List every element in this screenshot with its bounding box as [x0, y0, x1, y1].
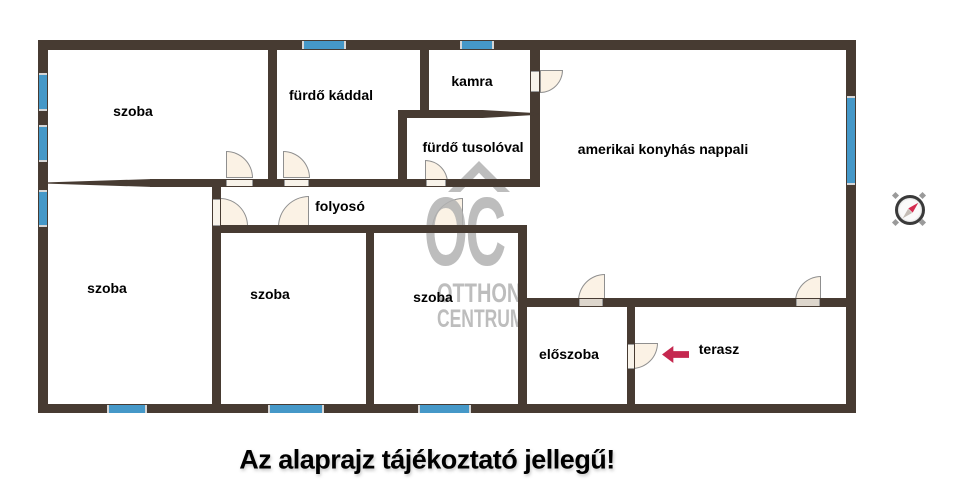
window [107, 405, 147, 413]
door-threshold [796, 299, 820, 306]
door-arc [578, 274, 605, 301]
watermark-centrum: CENTRUM [437, 308, 525, 330]
door-arc [283, 151, 310, 178]
floor-plan: OC OTTHON CENTRUM Az alaprajz tájékoztat… [0, 0, 963, 500]
wall [398, 114, 407, 187]
window [39, 73, 47, 111]
room-label-előszoba: előszoba [539, 346, 599, 362]
entrance-arrow-icon [662, 346, 689, 363]
door-threshold [213, 199, 220, 226]
door-threshold [426, 180, 446, 186]
compass-tick-nw [892, 192, 899, 199]
window [847, 96, 855, 185]
wall [47, 179, 153, 187]
room-label-szoba: szoba [87, 280, 127, 296]
window [39, 190, 47, 227]
room-label-szoba: szoba [413, 289, 453, 305]
door-arc [278, 196, 309, 227]
wall [366, 225, 374, 413]
room-label-amerikai-konyhás-nappali: amerikai konyhás nappali [578, 141, 748, 157]
room-label-fürdő-káddal: fürdő káddal [289, 87, 373, 103]
wall [518, 225, 527, 413]
door-threshold [531, 71, 539, 92]
door-arc [220, 198, 248, 226]
door-arc [540, 70, 563, 93]
wall [398, 110, 539, 118]
window [268, 405, 324, 413]
window [39, 125, 47, 162]
door-threshold [628, 344, 634, 369]
room-label-szoba: szoba [250, 286, 290, 302]
wall [150, 179, 540, 187]
compass-icon [891, 192, 929, 230]
door-threshold [284, 180, 309, 186]
room-label-kamra: kamra [451, 73, 492, 89]
door-arc [632, 343, 658, 369]
room-label-folyosó: folyosó [315, 198, 365, 214]
room-label-terasz: terasz [699, 341, 739, 357]
wall [420, 44, 429, 117]
window [302, 41, 346, 49]
room-label-fürdő-tusolóval: fürdő tusolóval [422, 139, 523, 155]
room-label-szoba: szoba [113, 103, 153, 119]
wall [268, 40, 277, 187]
wall [40, 40, 856, 50]
floor-plan-disclaimer: Az alaprajz tájékoztató jellegű! [239, 445, 615, 476]
door-threshold [579, 299, 603, 306]
window [418, 405, 471, 413]
door-threshold [226, 180, 253, 186]
door-arc [226, 151, 253, 178]
window [460, 41, 494, 49]
